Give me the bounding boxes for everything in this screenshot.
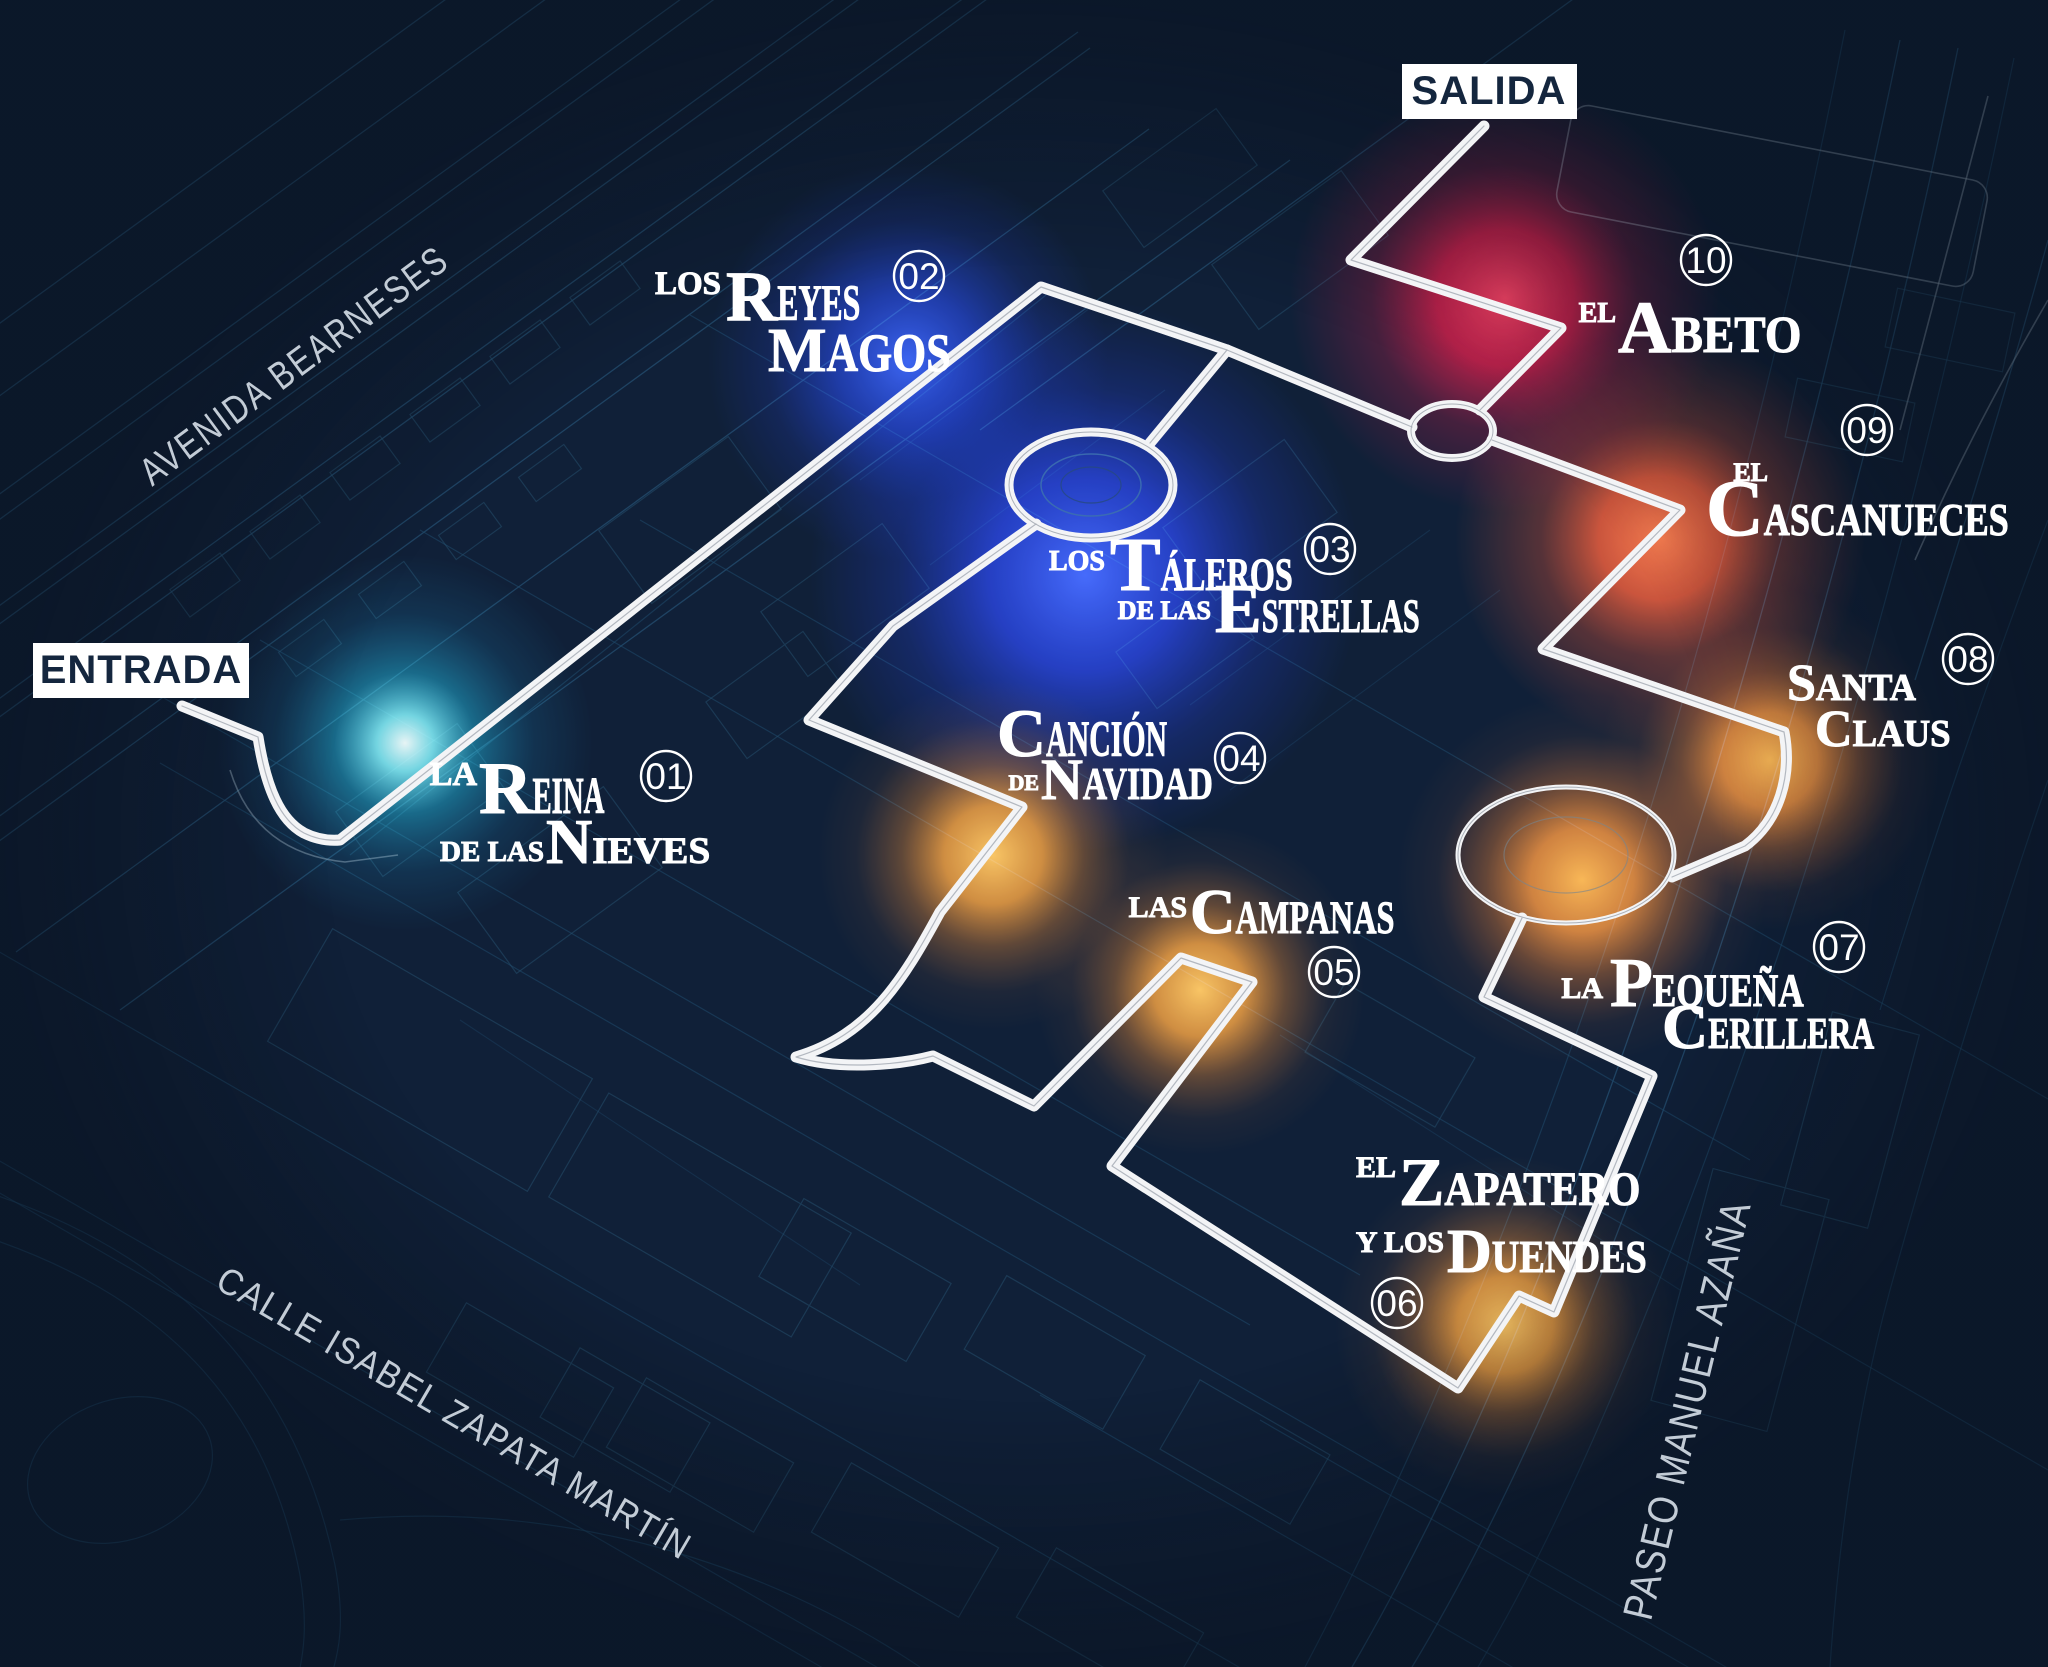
- svg-text:04: 04: [1219, 738, 1260, 779]
- svg-text:01: 01: [645, 756, 686, 797]
- svg-text:DE: DE: [1008, 770, 1039, 795]
- svg-text:DE LAS: DE LAS: [1118, 596, 1211, 625]
- svg-text:05: 05: [1313, 952, 1354, 993]
- svg-text:LA: LA: [1561, 972, 1603, 1005]
- svg-text:09: 09: [1846, 410, 1887, 451]
- svg-text:LOS: LOS: [1049, 546, 1105, 577]
- svg-text:10: 10: [1685, 240, 1726, 281]
- svg-text:SALIDA: SALIDA: [1412, 69, 1567, 113]
- svg-text:08: 08: [1947, 639, 1988, 680]
- svg-text:LOS: LOS: [655, 266, 721, 302]
- svg-text:DE LAS: DE LAS: [440, 836, 544, 868]
- svg-text:ENTRADA: ENTRADA: [40, 648, 243, 692]
- svg-text:EL: EL: [1579, 298, 1616, 329]
- svg-text:MAGOS: MAGOS: [768, 317, 951, 385]
- svg-text:LA: LA: [430, 756, 478, 793]
- svg-text:Y LOS: Y LOS: [1356, 1226, 1444, 1259]
- svg-text:07: 07: [1818, 927, 1859, 968]
- svg-text:06: 06: [1376, 1283, 1417, 1324]
- svg-text:02: 02: [898, 256, 939, 297]
- svg-text:03: 03: [1309, 529, 1350, 570]
- svg-text:LAS: LAS: [1129, 891, 1187, 924]
- svg-text:EL: EL: [1356, 1151, 1396, 1184]
